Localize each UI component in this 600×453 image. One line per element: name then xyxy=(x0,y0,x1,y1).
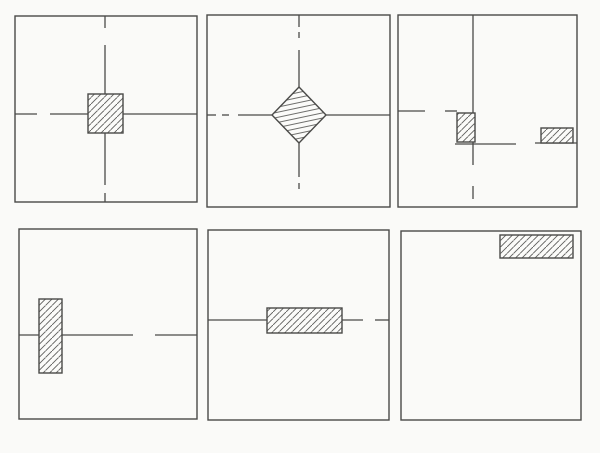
hatched-top-right-bar xyxy=(500,235,573,258)
hatched-rect-left xyxy=(457,113,475,142)
hatched-horizontal-bar xyxy=(267,308,342,333)
hatched-vertical-bar xyxy=(39,299,62,373)
hatched-square xyxy=(88,94,123,133)
hatched-rect-right xyxy=(541,128,573,143)
scanned-figure-page xyxy=(0,0,600,453)
six-panel-figure xyxy=(0,0,600,453)
page-background xyxy=(0,0,600,453)
